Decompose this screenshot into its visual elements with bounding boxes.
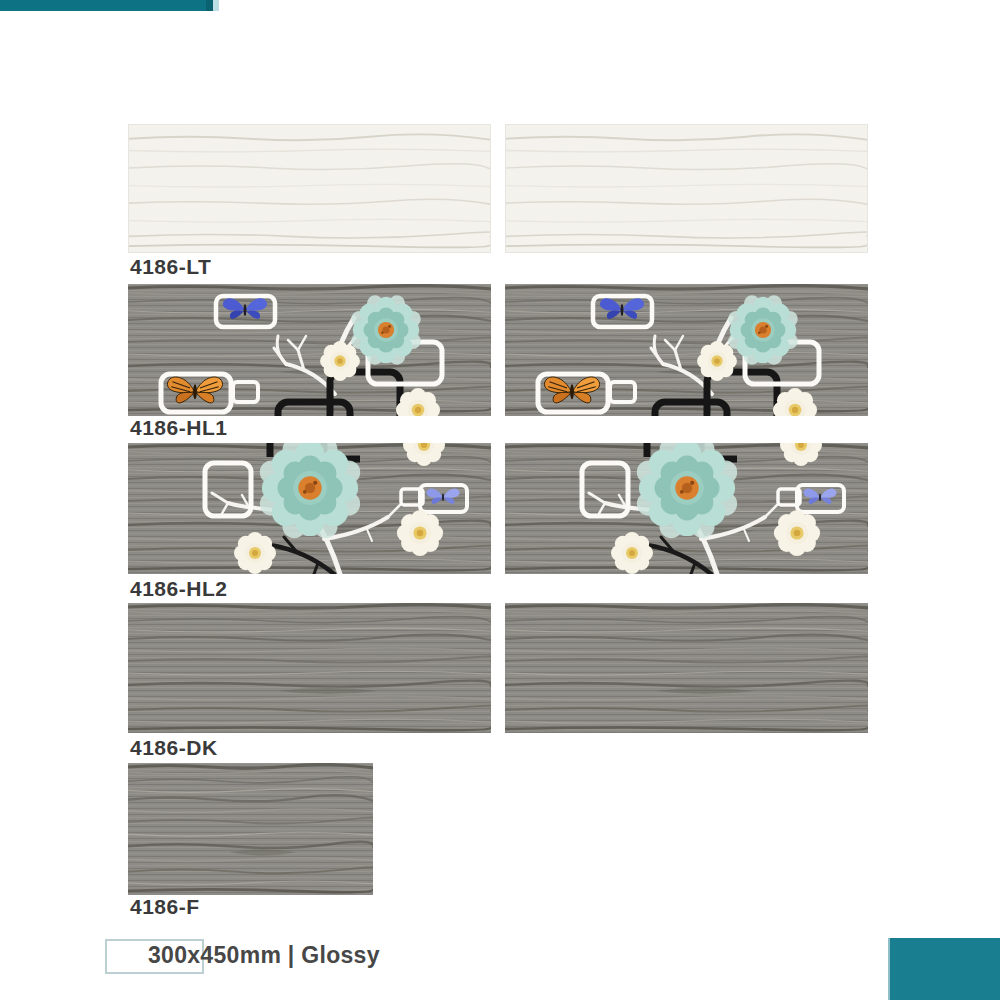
tile-swatch-dk-left xyxy=(128,603,491,733)
product-code-hl2: 4186-HL2 xyxy=(130,578,227,600)
product-code-hl1: 4186-HL1 xyxy=(130,417,227,439)
tile-swatch-hl2-right xyxy=(505,443,868,574)
bottom-right-accent-block xyxy=(888,938,1000,1000)
top-accent-bar xyxy=(0,0,206,11)
tile-swatch-dk-right xyxy=(505,603,868,733)
tile-swatch-lt-right xyxy=(505,124,868,253)
hl2-decor-art xyxy=(128,443,491,574)
product-code-f: 4186-F xyxy=(130,896,200,918)
tile-swatch-f xyxy=(128,763,373,895)
tile-catalog-page: 4186-LT 4186-HL1 4186-HL2 4186-DK 4186-F… xyxy=(0,0,1000,1000)
size-and-finish-text: 300x450mm | Glossy xyxy=(148,942,380,969)
hl1-decor-art xyxy=(128,284,491,416)
floor-wood-grain-art xyxy=(128,763,373,895)
hl2-decor-art xyxy=(505,443,868,574)
tile-swatch-hl1-right xyxy=(505,284,868,416)
product-code-dk: 4186-DK xyxy=(130,737,218,759)
tile-swatch-lt-left xyxy=(128,124,491,253)
dark-wood-grain-art xyxy=(128,603,491,733)
tile-swatch-hl2-left xyxy=(128,443,491,574)
light-wood-grain-art xyxy=(506,125,867,252)
light-wood-grain-art xyxy=(129,125,490,252)
product-code-lt: 4186-LT xyxy=(130,256,211,278)
tile-swatch-hl1-left xyxy=(128,284,491,416)
dark-wood-grain-art xyxy=(505,603,868,733)
top-accent-bar-tip xyxy=(206,0,213,11)
top-accent-bar-fade xyxy=(213,0,219,11)
hl1-decor-art xyxy=(505,284,868,416)
